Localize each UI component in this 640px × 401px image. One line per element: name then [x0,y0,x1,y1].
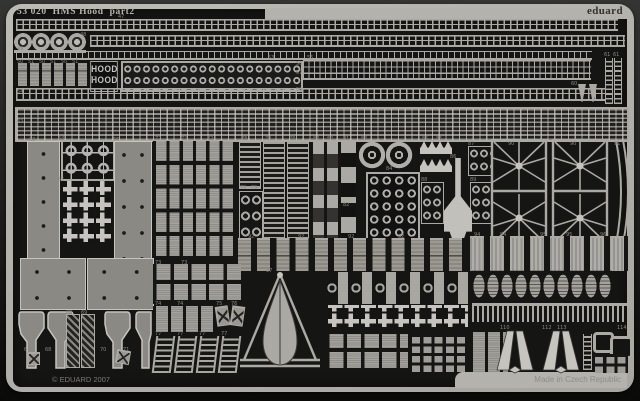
part-number-label: 57 [296,71,302,76]
copyright-text: © EDUARD 2007 [52,375,110,384]
part-number-label: 50 [17,60,23,65]
part-number-label: 61 [604,53,610,58]
part-number-label: 92 [348,235,354,240]
part-number-label: 62 [17,120,23,125]
part-number-label: 66 [113,138,119,143]
part-number-label: 61 [613,53,619,58]
part-number-label: 52 [90,77,96,82]
cross-fittings-panel-part-65 [61,181,111,244]
comb-strip-part [472,303,628,322]
part-number-label: 68 [45,348,51,353]
part-number-label: 64 [58,137,64,142]
cross-fittings-row [326,305,468,329]
part-number-label: 69 [81,311,87,316]
hatch-grid-parts-72 [153,141,233,260]
part-number-label: 55 [307,56,313,61]
radial-awning-frames-parts-90-91 [490,138,630,248]
part-number-label: 79 [251,186,257,191]
part-number-label: 70 [100,348,106,353]
part-number-label: 90 [570,142,576,147]
part-number-label: 74 [155,302,161,307]
hatched-strip-part-69 [81,314,95,368]
part-number-label: 86 [450,155,456,160]
ladder-part-61 [605,58,613,104]
hatched-strip-part-69 [66,314,80,368]
part-number-label: 81 [343,137,349,142]
vent-strip-part-80 [313,141,324,253]
part-number-label: 83 [361,137,367,142]
part-number-label: 85 [436,137,442,142]
small-hatch-stacks [326,334,408,372]
part-number-label: 60 [571,82,577,87]
part-number-label: 56 [296,62,302,67]
part-number-label: 95 [540,233,546,238]
part-number-label: 51 [72,60,78,65]
part-number-label: 94 [474,233,480,238]
chevron-teeth-part-86 [420,158,452,173]
part-number-label: 72 [207,137,213,142]
railing-parts-54-59 [16,88,606,101]
ring-plate-part-88 [421,182,444,224]
part-number-label: 63 [29,138,35,143]
part-number-label: 92 [298,235,304,240]
part-number-label: 92 [248,235,254,240]
chevron-teeth-part-85 [420,140,452,155]
part-number-label: 73 [155,261,161,266]
hatch-row-parts-74 [153,306,213,332]
part-number-label: 54 [17,90,23,95]
square-plate-grid-small [595,354,628,373]
part-number-label: 96 [600,233,606,238]
part-number-label: 82 [343,203,349,208]
part-number-label: 77 [221,332,227,337]
nameplate-line: HOOD [91,64,117,75]
porthole-circles-part-48 [14,31,86,53]
part-number-label: 72 [181,137,187,142]
vent-row-parts-94-95-96 [470,236,628,271]
railing-part-55 [90,35,625,47]
deck-panel-part-66 [114,141,152,262]
part-number-label: 94 [500,233,506,238]
part-number-label: 78 [265,137,271,142]
deck-panel-part-63 [27,141,60,262]
winch-row-parts-98 [326,272,468,304]
part-number-label: 74 [177,302,183,307]
part-number-label: 91 [614,142,620,147]
double-railing-parts-56-57 [303,59,591,80]
part-number-label: 50 [61,60,67,65]
part-number-label: 65 [58,178,64,183]
derrick-crane-part-97 [236,268,324,368]
part-number-label: 53 [268,56,274,61]
part-number-label: 80 [327,137,333,142]
x-plate-part-75 [215,305,231,327]
x-plate-small [27,352,40,365]
door-row-parts-92 [238,238,468,271]
part-number-label: 71 [123,348,129,353]
part-number-label: 48 [80,33,86,38]
part-number-label: 77 [177,332,183,337]
x-plate-part-76 [230,305,246,327]
part-number-label: 97 [266,269,272,274]
grating-strip-part-78 [239,141,261,189]
part-number-label: 90 [508,142,514,147]
part-number-label: 78 [289,137,295,142]
hatch-grid-parts-73 [153,264,241,304]
part-number-label: 67 [24,348,30,353]
part-number-label: 112 [542,326,552,331]
part-number-label: 47 [118,15,124,20]
part-number-label: 51 [50,60,56,65]
frame-band-top-right [265,8,627,19]
part-number-label: 110 [500,326,510,331]
crossed-rings-panel-part-64 [61,140,115,181]
part-number-label: 80 [313,137,319,142]
panel-strip-part-81 [341,141,356,203]
square-plate-grid [412,334,466,372]
part-number-label: 72 [155,137,161,142]
railing-part-47 [16,19,618,31]
part-number-label: 69 [66,311,72,316]
part-number-label: 95 [566,233,572,238]
walkway-grating-part-62 [15,107,629,142]
part-number-label: 59 [296,88,302,93]
vent-strip-part-80 [327,141,338,253]
part-number-label: 77 [155,332,161,337]
part-number-label: 84 [386,167,392,172]
part-number-label: 51 [28,60,34,65]
part-number-label: 79 [240,186,246,191]
part-number-label: 92 [398,235,404,240]
made-in-text: Made in Czech Republic [534,375,621,384]
part-number-label: 88 [421,178,427,183]
funnel-splay-parts-110-112-113 [495,328,581,374]
part-number-label: 89 [470,178,476,183]
ladder-strip-part [583,334,592,370]
ladder-part-61 [614,58,622,104]
part-number-label: 113 [557,326,567,331]
deck-panel-lower-left [20,258,86,310]
part-number-label: 76 [231,302,237,307]
float-ovals-row [472,270,612,302]
part-number-label: 87 [468,142,474,147]
part-number-label: 50 [39,60,45,65]
part-number-label: 77 [199,332,205,337]
part-number-label: 114 [617,326,627,331]
part-number-label: 49 [17,47,23,52]
photo-etch-fret-photo: 53 020 HMS Hood part2 eduard © EDUARD 20… [0,0,640,401]
brand-logo: eduard [587,5,623,17]
part-number-label: 78 [241,137,247,142]
deck-panel-lower-left [87,258,154,310]
ring-plate-part-87 [468,146,492,176]
part-number-label: 73 [181,261,187,266]
part-number-label: 75 [216,302,222,307]
hatch-row-parts-50-51 [15,63,87,86]
part-number-label: 85 [422,137,428,142]
